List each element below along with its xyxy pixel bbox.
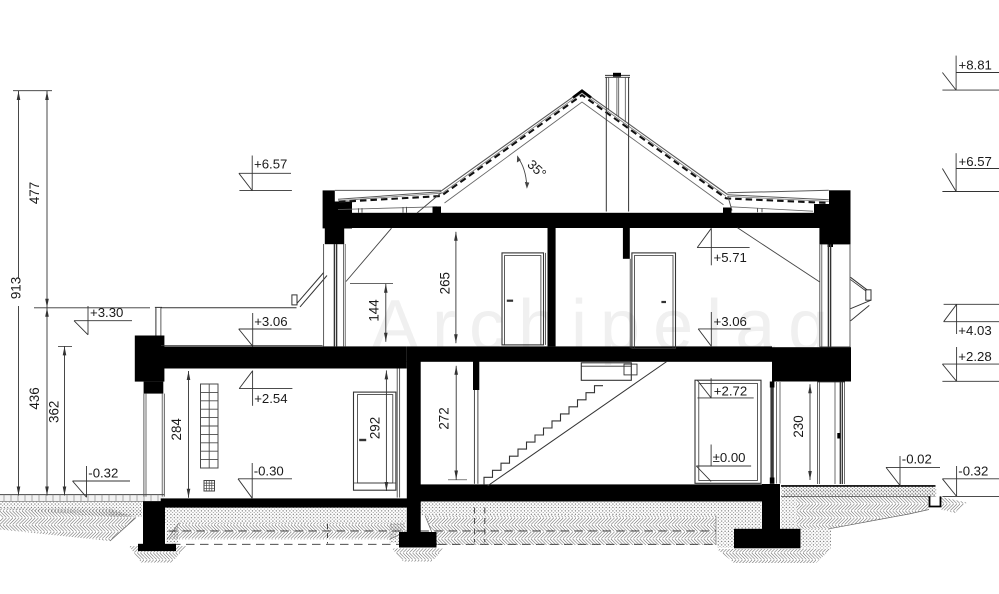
svg-text:362: 362	[46, 401, 61, 423]
svg-text:144: 144	[367, 299, 382, 322]
svg-text:-0.02: -0.02	[902, 452, 932, 467]
svg-text:+5.71: +5.71	[714, 250, 747, 265]
svg-text:284: 284	[169, 418, 184, 441]
svg-text:-0.30: -0.30	[254, 464, 284, 479]
svg-text:±0.00: ±0.00	[713, 450, 746, 465]
svg-text:436: 436	[27, 387, 42, 409]
svg-text:477: 477	[27, 182, 42, 204]
svg-text:+6.57: +6.57	[254, 157, 287, 172]
svg-text:+3.06: +3.06	[714, 314, 747, 329]
svg-text:-0.32: -0.32	[958, 464, 988, 479]
svg-text:+6.57: +6.57	[959, 154, 992, 169]
svg-text:+2.54: +2.54	[254, 391, 287, 406]
svg-text:+4.03: +4.03	[958, 323, 991, 338]
svg-text:+2.28: +2.28	[958, 349, 991, 364]
svg-text:913: 913	[9, 277, 24, 299]
svg-text:265: 265	[438, 272, 453, 294]
svg-text:+8.81: +8.81	[959, 58, 992, 73]
svg-text:-0.32: -0.32	[88, 466, 118, 481]
svg-text:292: 292	[367, 417, 382, 439]
svg-text:+3.30: +3.30	[90, 305, 123, 320]
svg-text:230: 230	[791, 415, 806, 437]
svg-text:+3.06: +3.06	[254, 314, 287, 329]
svg-text:272: 272	[436, 407, 451, 429]
svg-text:+2.72: +2.72	[714, 383, 747, 398]
